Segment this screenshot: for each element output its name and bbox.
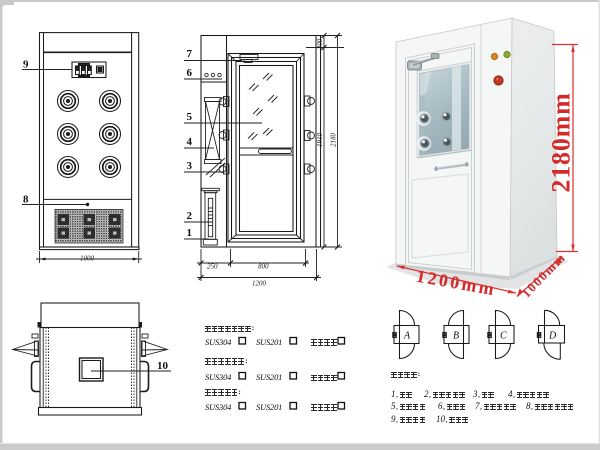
svg-text:2180: 2180 [330, 133, 338, 148]
svg-text:C: C [500, 331, 507, 342]
svg-text:300: 300 [316, 38, 324, 50]
svg-text:7: 7 [187, 48, 193, 60]
svg-text:1910: 1910 [316, 133, 324, 148]
svg-text:1: 1 [187, 227, 193, 239]
svg-text:D: D [548, 331, 557, 342]
svg-text:5: 5 [187, 111, 193, 123]
svg-text:4: 4 [187, 136, 193, 148]
svg-text:8: 8 [23, 194, 29, 206]
svg-text:2180mm: 2180mm [546, 92, 575, 192]
svg-text:1200: 1200 [252, 280, 267, 288]
svg-text:9: 9 [23, 59, 29, 71]
svg-text:3: 3 [187, 160, 193, 172]
svg-text:B: B [453, 331, 459, 342]
svg-text:2: 2 [187, 210, 193, 222]
svg-text:6: 6 [187, 67, 193, 79]
svg-text:A: A [403, 331, 411, 342]
svg-text:1000: 1000 [80, 255, 95, 263]
svg-text:800: 800 [258, 263, 269, 271]
svg-text:250: 250 [207, 263, 218, 271]
svg-text:10: 10 [157, 360, 169, 372]
